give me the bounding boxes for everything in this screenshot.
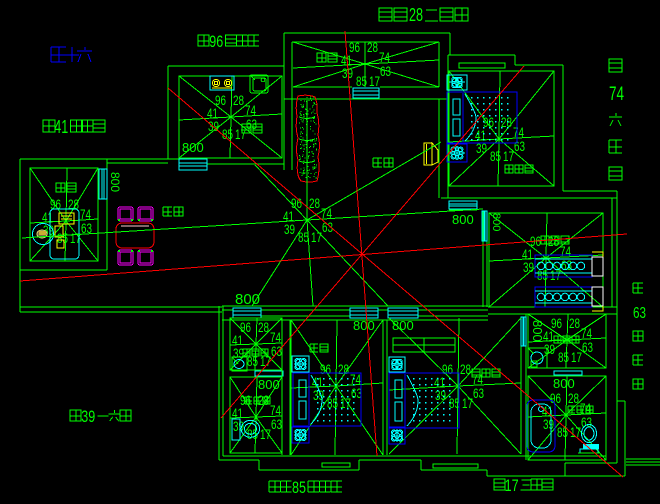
svg-text:39: 39 — [523, 259, 534, 275]
svg-text:85: 85 — [247, 353, 258, 369]
svg-text:17: 17 — [235, 126, 246, 142]
svg-text:85: 85 — [292, 478, 306, 497]
svg-text:17: 17 — [260, 426, 271, 442]
svg-text:85: 85 — [356, 73, 367, 89]
svg-text:28: 28 — [548, 233, 559, 249]
svg-text:17: 17 — [505, 476, 519, 495]
svg-text:39: 39 — [284, 221, 295, 237]
svg-text:800: 800 — [452, 212, 474, 227]
svg-text:85: 85 — [298, 229, 309, 245]
svg-text:39: 39 — [233, 418, 244, 434]
svg-text:17: 17 — [311, 229, 322, 245]
svg-text:28: 28 — [568, 390, 579, 406]
svg-text:85: 85 — [222, 126, 233, 142]
svg-text:39: 39 — [81, 407, 95, 426]
svg-text:800: 800 — [553, 376, 575, 391]
svg-text:17: 17 — [571, 349, 582, 365]
svg-text:28: 28 — [501, 114, 512, 130]
svg-text:85: 85 — [490, 148, 501, 164]
svg-text:39: 39 — [435, 387, 446, 403]
svg-text:39: 39 — [543, 416, 554, 432]
svg-text:17: 17 — [462, 395, 473, 411]
svg-text:85: 85 — [327, 395, 338, 411]
svg-text:17: 17 — [570, 424, 581, 440]
svg-text:96: 96 — [209, 32, 223, 51]
svg-text:85: 85 — [557, 424, 568, 440]
svg-text:85: 85 — [558, 349, 569, 365]
svg-text:28: 28 — [309, 195, 320, 211]
svg-text:17: 17 — [369, 73, 380, 89]
svg-text:800: 800 — [235, 291, 260, 308]
svg-text:800: 800 — [182, 140, 204, 155]
svg-text:28: 28 — [258, 319, 269, 335]
svg-text:28: 28 — [569, 315, 580, 331]
svg-text:63: 63 — [514, 138, 525, 154]
svg-text:63: 63 — [380, 63, 391, 79]
svg-text:63: 63 — [633, 305, 646, 322]
svg-text:63: 63 — [271, 343, 282, 359]
svg-text:74: 74 — [609, 84, 624, 105]
svg-text:41: 41 — [54, 117, 68, 137]
svg-text:28: 28 — [460, 361, 471, 377]
svg-text:800: 800 — [258, 377, 280, 392]
svg-text:28: 28 — [338, 361, 349, 377]
svg-text:85: 85 — [449, 395, 460, 411]
svg-text:39: 39 — [233, 345, 244, 361]
svg-text:63: 63 — [351, 385, 362, 401]
svg-text:28: 28 — [367, 39, 378, 55]
svg-text:39: 39 — [544, 341, 555, 357]
svg-text:800: 800 — [392, 318, 414, 333]
svg-text:28: 28 — [233, 92, 244, 108]
svg-text:800: 800 — [108, 172, 122, 192]
svg-text:28: 28 — [409, 5, 423, 25]
svg-text:63: 63 — [473, 385, 484, 401]
svg-text:63: 63 — [271, 416, 282, 432]
svg-text:39: 39 — [476, 140, 487, 156]
svg-text:63: 63 — [582, 339, 593, 355]
svg-text:39: 39 — [208, 118, 219, 134]
svg-text:17: 17 — [503, 148, 514, 164]
svg-text:800: 800 — [353, 318, 375, 333]
